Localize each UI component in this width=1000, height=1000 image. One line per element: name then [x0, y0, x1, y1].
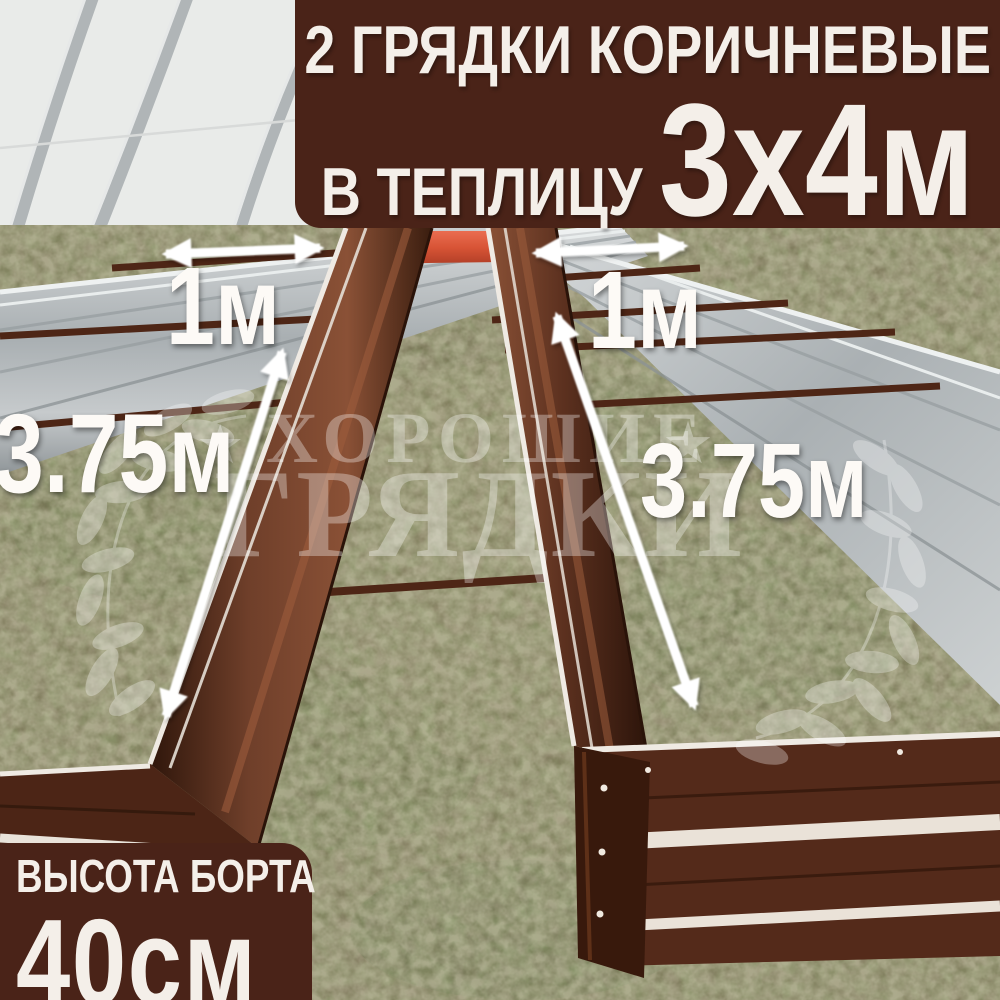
banner-line2-prefix: В ТЕПЛИЦУ [320, 158, 642, 226]
badge-title: ВЫСОТА БОРТА [16, 853, 316, 899]
label-width-left: 1м [166, 252, 309, 362]
banner-size-value: 3х4м [659, 80, 975, 240]
label-width-right: 1м [588, 256, 731, 366]
label-length-left: 3.75м [0, 398, 295, 510]
title-banner: 2 ГРЯДКИ КОРИЧНЕВЫЕ В ТЕПЛИЦУ 3х4м [295, 0, 1000, 228]
product-photo-card: ★ ★ ХОРОШИЕ ГРЯДКИ 1м 1м 3.75м [0, 0, 1000, 1000]
badge-value: 40см [16, 901, 257, 1000]
banner-line2: В ТЕПЛИЦУ 3х4м [320, 80, 974, 240]
board-height-badge: ВЫСОТА БОРТА 40см [0, 843, 312, 1000]
label-length-right: 3.75м [640, 428, 925, 534]
